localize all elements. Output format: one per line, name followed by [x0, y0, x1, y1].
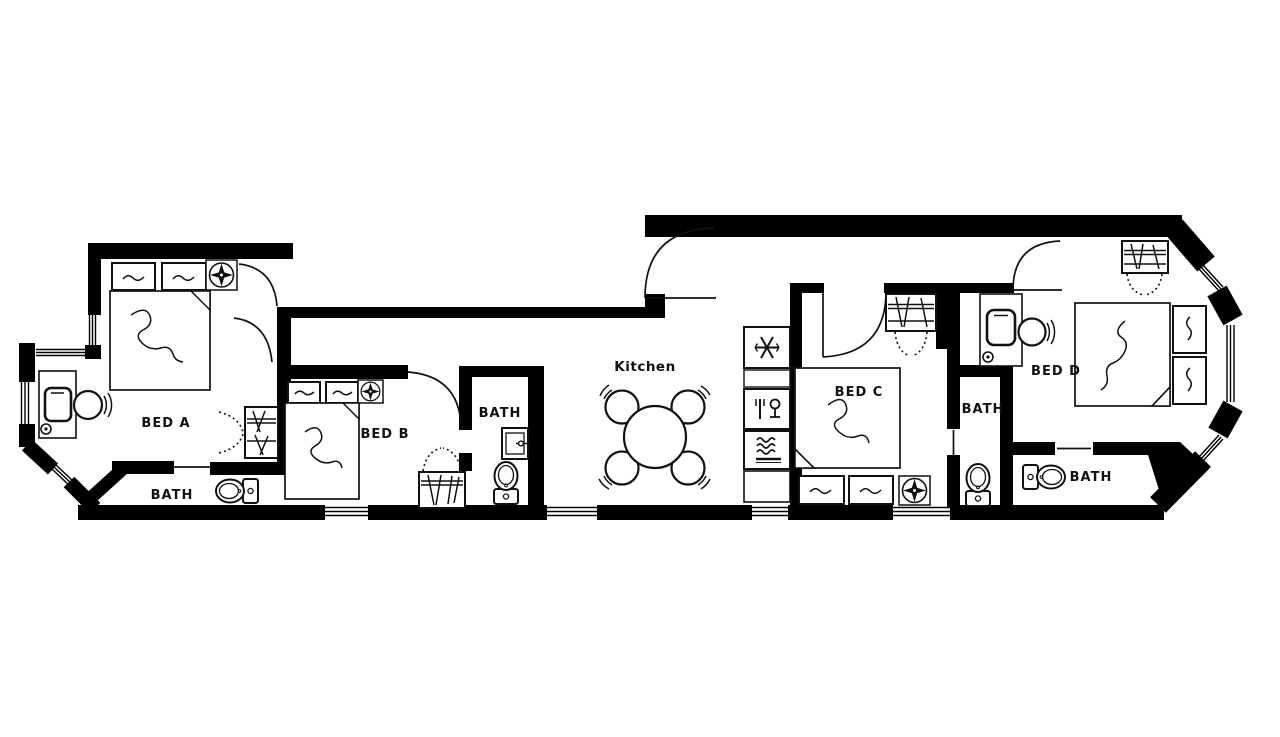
pillow [162, 263, 206, 290]
wall-segment [19, 424, 35, 447]
wall-segment [645, 215, 1182, 237]
bathA-wall [112, 461, 174, 474]
window [52, 465, 75, 487]
closet-door-dotted [1127, 274, 1143, 295]
wall-segment [78, 505, 325, 520]
closet-door-dotted [912, 332, 927, 356]
sink [502, 428, 531, 459]
closet-door-dotted [219, 412, 243, 432]
double-bed [110, 263, 210, 390]
bathC-wall [947, 455, 960, 507]
desk-with-chair [980, 294, 1055, 366]
closet-hangers [1122, 241, 1168, 295]
chair [1019, 319, 1046, 346]
room-bath-a: BATH [151, 479, 258, 503]
toilet [494, 462, 518, 504]
toilet [966, 464, 990, 506]
bedA-door-swing [234, 264, 277, 362]
closet-door-dotted [219, 434, 243, 453]
round-dining-table [624, 406, 686, 468]
appliance-dishwasher [744, 389, 790, 429]
wall-segment [85, 345, 101, 359]
closet-door-dotted [1146, 274, 1162, 295]
room-kitchen: Kitchen [599, 327, 790, 502]
room-bath-c: BATH [962, 402, 1005, 506]
room-label-bed-a: BED A [141, 416, 190, 431]
bedB-north-wall [282, 365, 408, 379]
room-label-bed-c: BED C [835, 385, 884, 400]
wall-segment [1218, 406, 1233, 433]
closet-door-dotted [443, 448, 461, 471]
wall-segment [27, 445, 53, 469]
room-label-bed-d: BED D [1031, 364, 1081, 379]
room-label-bath-c: BATH [962, 402, 1005, 417]
wall-segment [1217, 291, 1233, 320]
ceiling-fan-icon [358, 380, 383, 403]
wall-segment [950, 505, 1164, 520]
bathD-wall [1093, 442, 1150, 455]
ceiling-fan-icon [899, 476, 930, 505]
window [1199, 265, 1223, 291]
appliance-stove [744, 431, 790, 469]
bed-body [110, 291, 210, 390]
closet-hangers [219, 407, 278, 458]
room-label-bath-b: BATH [479, 406, 522, 421]
bedC-north-wall [790, 283, 824, 293]
closet-door-dotted [895, 332, 910, 356]
room-bed-a: BED A [39, 260, 278, 458]
bathA-wall [210, 462, 280, 475]
room-bath-d: BATH [1023, 465, 1112, 489]
counter-segment [744, 370, 790, 387]
counter-segment [744, 471, 790, 502]
window [1199, 435, 1223, 461]
appliance-refrigerator [744, 327, 790, 368]
window [22, 382, 29, 424]
room-label-bath-a: BATH [151, 488, 194, 503]
toilet [216, 479, 258, 503]
bathB-wall [459, 453, 472, 471]
closet-door-dotted [423, 448, 441, 471]
desk-with-chair [39, 371, 112, 438]
bathC-wall [947, 377, 960, 429]
wall-segment [597, 505, 752, 520]
bathD-wall [1013, 442, 1055, 455]
ceiling-fan-icon [206, 260, 237, 290]
entry-door [645, 228, 716, 298]
window [752, 508, 788, 516]
wall-segment [19, 343, 35, 382]
room-label-bed-b: BED B [360, 427, 409, 442]
nook-west-wall [947, 293, 960, 377]
room-bed-d: BED D [980, 241, 1206, 406]
pillow [849, 476, 893, 504]
bed-body [795, 368, 900, 468]
bedC-door-swing [823, 293, 886, 357]
chair [74, 391, 102, 419]
pillow [112, 263, 155, 290]
pillow [799, 476, 844, 504]
bathB-wall [528, 366, 544, 515]
double-bed [1075, 303, 1206, 406]
double-bed [285, 382, 359, 499]
hallway-wall [277, 307, 665, 318]
window [90, 315, 96, 346]
wall-segment [788, 505, 893, 520]
window [893, 508, 950, 516]
closet-hangers [419, 448, 465, 508]
window [325, 508, 368, 516]
closet-hangers [886, 294, 936, 356]
room-label-bath-d: BATH [1070, 470, 1113, 485]
bed-body [285, 403, 359, 499]
toilet [1023, 465, 1065, 489]
window [547, 508, 597, 516]
window [1227, 325, 1234, 402]
wall-segment [1174, 227, 1206, 264]
window [36, 350, 85, 356]
room-bed-b: BED B [285, 380, 465, 508]
bedD-door-swing [1013, 241, 1062, 290]
bathC-bathD-divider [1000, 377, 1013, 507]
room-label-kitchen: Kitchen [614, 359, 675, 375]
room-bed-c: BED C [795, 294, 936, 505]
bathB-wall [472, 366, 530, 377]
bedB-door-swing [408, 372, 461, 424]
room-bath-b: BATH [479, 406, 531, 504]
floor-plan: BED A BATH [0, 0, 1280, 737]
wall-segment [90, 243, 293, 259]
